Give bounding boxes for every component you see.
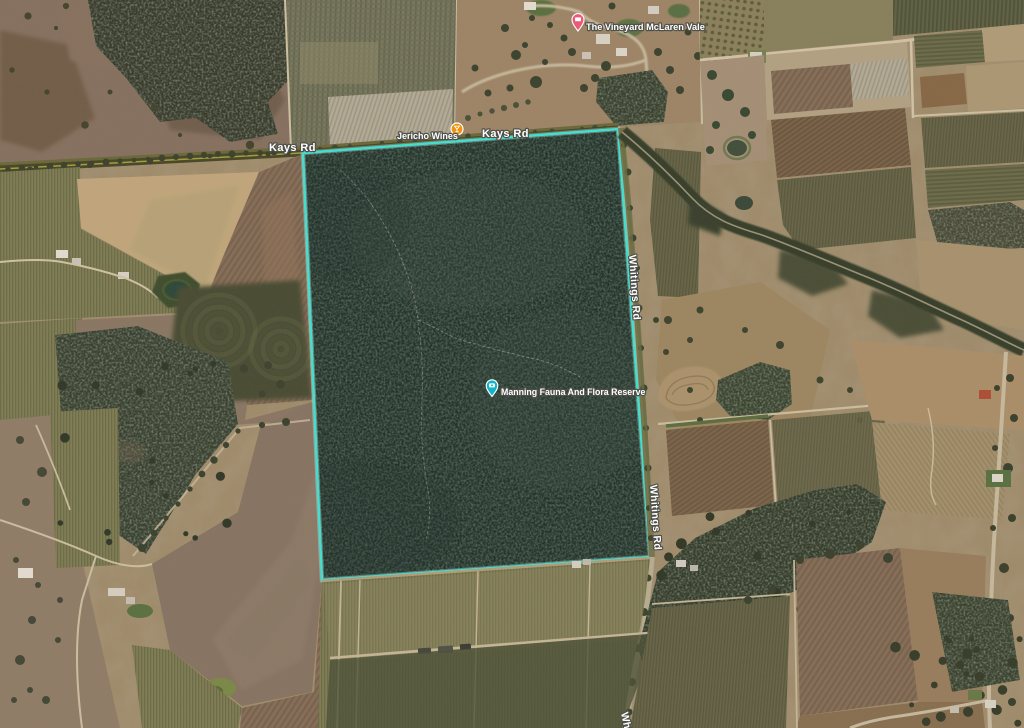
svg-text:Kays Rd: Kays Rd <box>269 142 316 154</box>
svg-text:Kays Rd: Kays Rd <box>482 128 529 140</box>
svg-text:Jericho Wines: Jericho Wines <box>397 131 458 141</box>
svg-text:The Vineyard McLaren Vale: The Vineyard McLaren Vale <box>586 22 705 32</box>
svg-text:Manning Fauna And Flora Reserv: Manning Fauna And Flora Reserve <box>501 387 645 397</box>
